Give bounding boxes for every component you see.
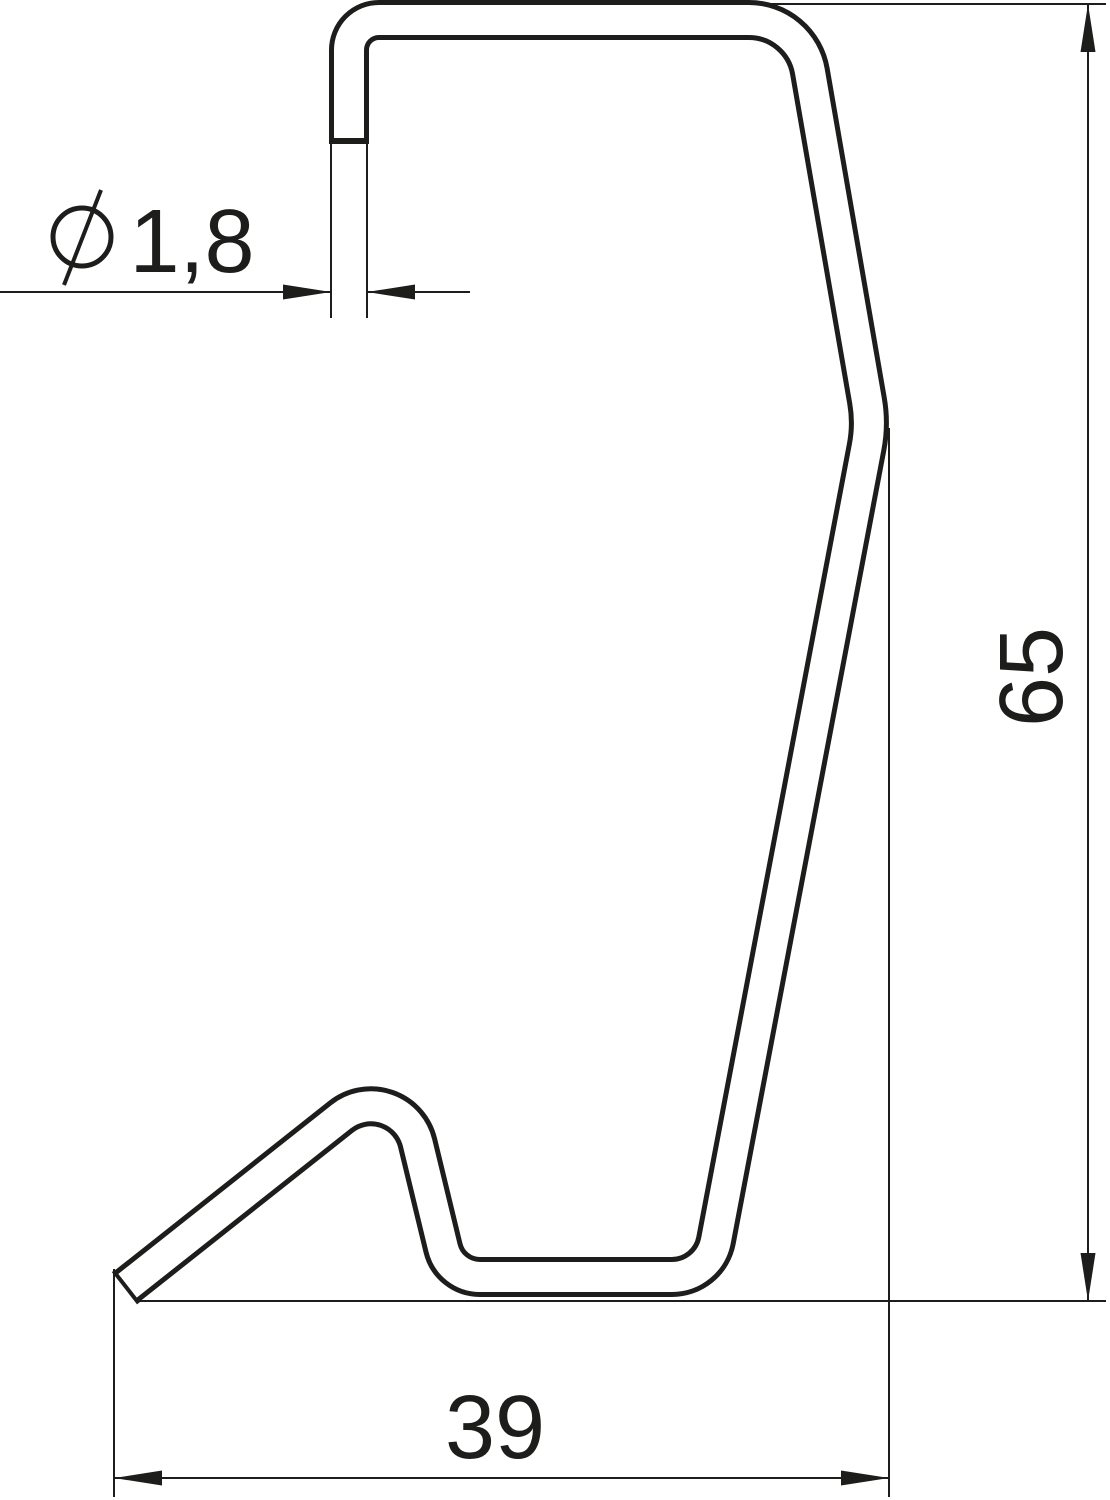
dimension-arrowhead	[114, 1471, 162, 1486]
dimension-arrowhead	[367, 285, 415, 300]
dim-diameter: 1,8	[0, 144, 470, 318]
diameter-icon-slash	[64, 190, 101, 285]
dimension-arrowhead	[1081, 4, 1096, 52]
drawing-canvas: 1,8 65 39	[0, 0, 1110, 1500]
dim-text-width: 39	[445, 1378, 545, 1478]
technical-drawing: 1,8 65 39	[0, 0, 1110, 1500]
dimension-arrowhead	[1081, 1253, 1096, 1301]
dimension-arrowhead	[283, 285, 331, 300]
dim-height: 65	[137, 4, 1106, 1301]
dim-text-diameter: 1,8	[129, 192, 254, 292]
dim-text-height: 65	[982, 627, 1082, 727]
dimension-arrowhead	[841, 1471, 889, 1486]
